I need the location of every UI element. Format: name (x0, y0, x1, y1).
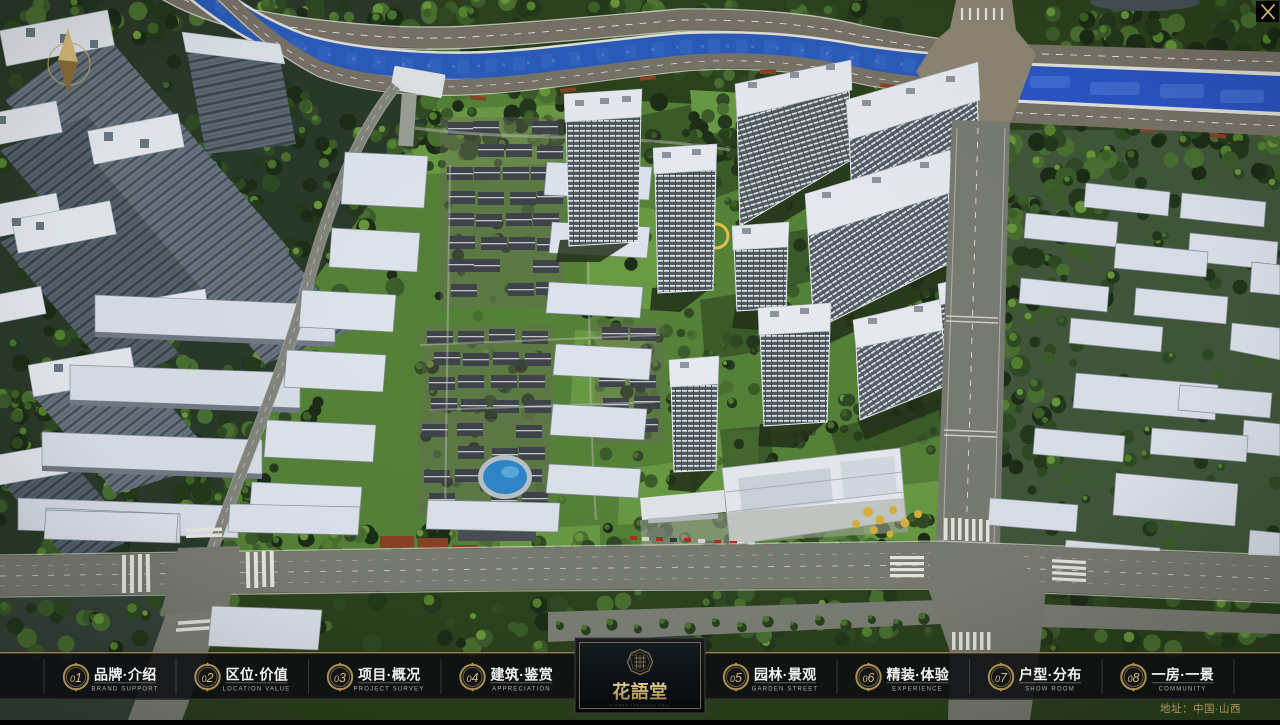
svg-text:GARDEN STREET: GARDEN STREET (752, 687, 819, 693)
svg-text:BRAND SUPPORT: BRAND SUPPORT (91, 687, 158, 693)
svg-text:04: 04 (467, 671, 479, 685)
svg-text:一房·一景: 一房·一景 (1152, 667, 1215, 683)
svg-text:户型·分布: 户型·分布 (1019, 667, 1082, 683)
svg-text:项目·概况: 项目·概况 (358, 667, 421, 683)
svg-text:01: 01 (70, 671, 82, 685)
svg-text:地址：中国·山西: 地址：中国·山西 (1160, 702, 1241, 715)
svg-text:花語堂: 花語堂 (612, 681, 668, 702)
svg-text:SHOW ROOM: SHOW ROOM (1025, 687, 1075, 693)
svg-text:精装·体验: 精装·体验 (887, 667, 950, 683)
svg-text:FLOWER LANGUAGE HALL: FLOWER LANGUAGE HALL (609, 704, 670, 708)
svg-text:08: 08 (1128, 671, 1140, 685)
svg-text:APPRECIATION: APPRECIATION (492, 687, 551, 693)
svg-text:02: 02 (202, 671, 214, 685)
svg-text:PROJECT SURVEY: PROJECT SURVEY (354, 687, 425, 693)
svg-text:品牌·介绍: 品牌·介绍 (94, 667, 157, 683)
svg-text:06: 06 (863, 671, 875, 685)
svg-text:EXPERIENCE: EXPERIENCE (892, 687, 943, 693)
svg-text:07: 07 (995, 671, 1008, 685)
svg-text:区位·价值: 区位·价值 (226, 667, 289, 683)
svg-text:LOCATION VALUE: LOCATION VALUE (223, 687, 291, 693)
svg-text:COMMUNITY: COMMUNITY (1159, 687, 1207, 693)
svg-text:05: 05 (730, 671, 742, 685)
svg-text:03: 03 (334, 671, 346, 685)
svg-text:建筑·鉴赏: 建筑·鉴赏 (491, 667, 554, 683)
svg-text:园林·景观: 园林·景观 (754, 667, 817, 683)
